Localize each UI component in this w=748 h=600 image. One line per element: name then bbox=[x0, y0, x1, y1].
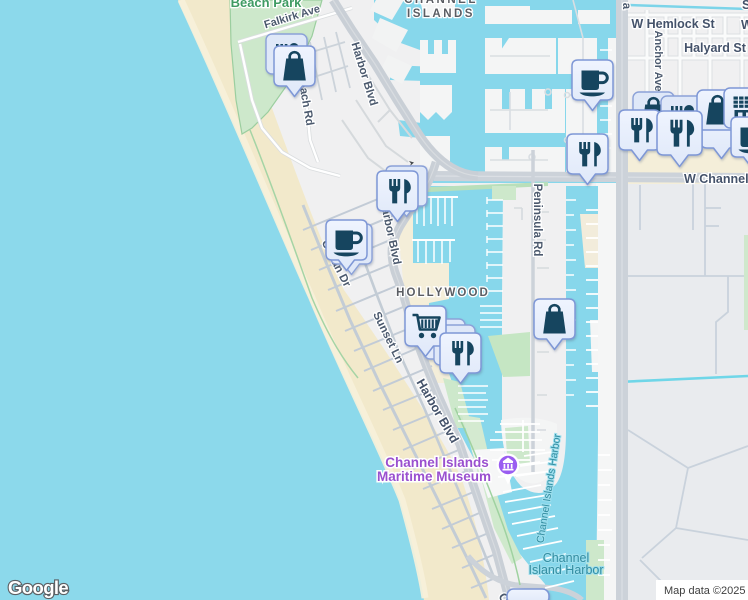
svg-text:W Hemlock St: W Hemlock St bbox=[631, 17, 715, 31]
svg-text:W: W bbox=[741, 18, 748, 32]
svg-text:Island Harbor: Island Harbor bbox=[528, 563, 603, 577]
svg-text:Peninsula Rd: Peninsula Rd bbox=[531, 184, 543, 257]
svg-text:W Channel: W Channel bbox=[684, 172, 748, 186]
svg-text:Maritime Museum: Maritime Museum bbox=[377, 469, 491, 484]
svg-text:CHANNEL: CHANNEL bbox=[404, 0, 478, 6]
svg-text:Google: Google bbox=[8, 577, 68, 598]
svg-text:Halyard St: Halyard St bbox=[684, 41, 747, 55]
svg-text:Channel Islands: Channel Islands bbox=[385, 455, 489, 470]
svg-text:a: a bbox=[620, 3, 632, 10]
svg-text:HOLLYWOOD: HOLLYWOOD bbox=[396, 287, 490, 299]
svg-text:S: S bbox=[742, 0, 748, 12]
svg-text:Map data ©2025: Map data ©2025 bbox=[664, 585, 746, 597]
svg-text:ISLANDS: ISLANDS bbox=[407, 8, 475, 20]
svg-text:Beach Park: Beach Park bbox=[231, 0, 303, 10]
svg-text:Anchor Ave: Anchor Ave bbox=[652, 31, 664, 92]
